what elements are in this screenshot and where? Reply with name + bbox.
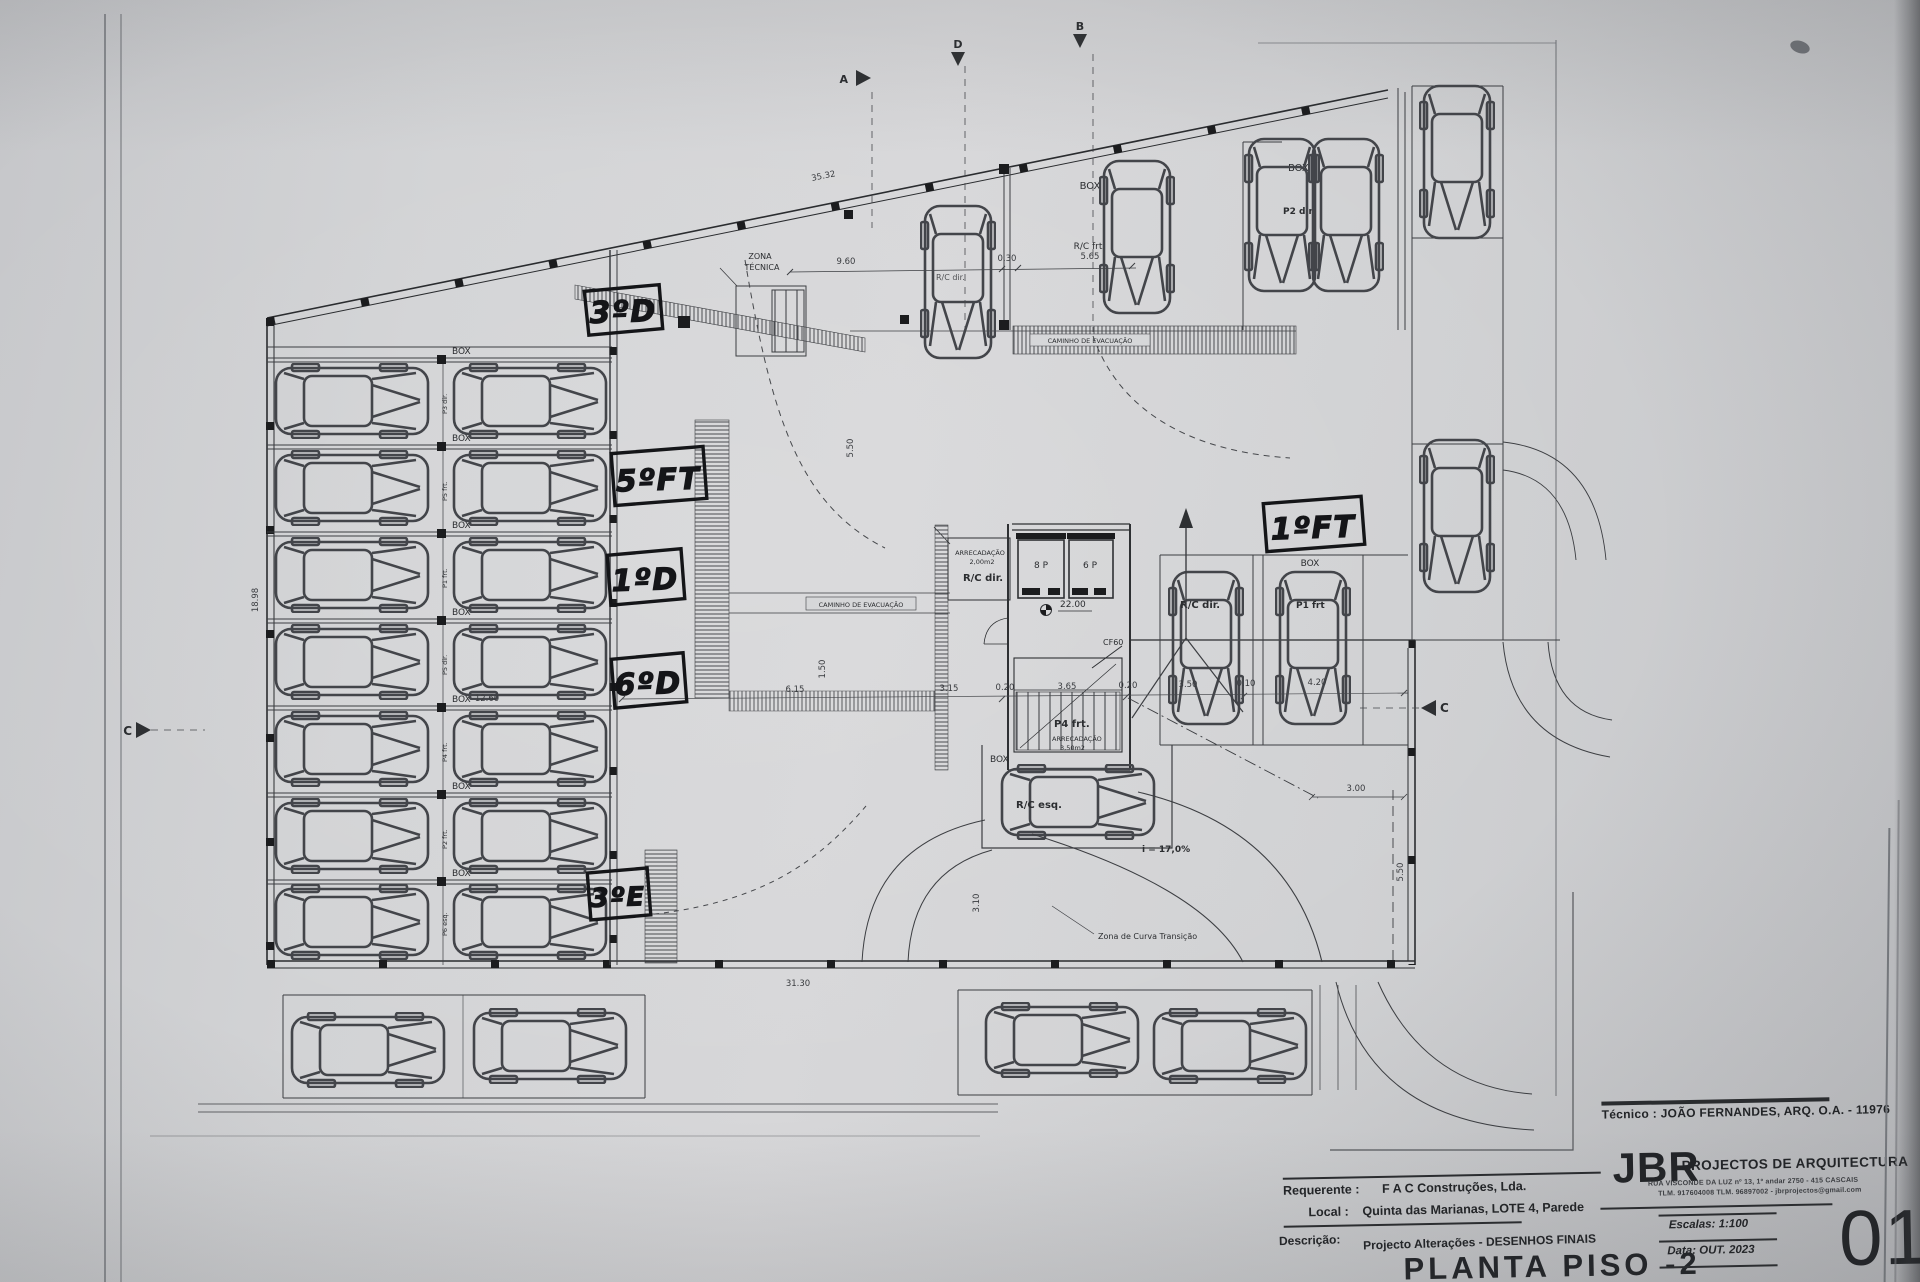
section-marker-icon: [1073, 34, 1087, 48]
svg-text:5ºFT: 5ºFT: [615, 461, 702, 499]
data-value: OUT. 2023: [1699, 1244, 1755, 1257]
car-icon: [1100, 161, 1174, 313]
p2-dir-label: P2 dir.: [1283, 207, 1315, 217]
car-icon: [292, 1013, 444, 1087]
car-icon: [1245, 139, 1319, 291]
lift-6p-label: 6 P: [1083, 561, 1098, 571]
dim-3-00: 3.00: [1347, 784, 1366, 794]
dim-0-20: 0.20: [996, 683, 1015, 693]
local-value: Quinta das Marianas, LOTE 4, Parede: [1362, 1200, 1584, 1218]
stall-code: P6 esq.: [441, 912, 449, 936]
box-label: BOX: [452, 782, 471, 792]
box-label: BOX: [452, 608, 471, 618]
dim-4-20: 4.20: [1308, 678, 1327, 688]
firm-name: PROJECTOS DE ARQUITECTURA: [1681, 1154, 1908, 1173]
car-icon: [1169, 572, 1243, 724]
rc-dir-label: R/C dir.: [963, 573, 1003, 584]
car-icon: [276, 451, 428, 525]
stall-code: P1 frt.: [441, 568, 449, 588]
section-a: A: [839, 73, 848, 86]
data-label: Data:: [1667, 1245, 1696, 1258]
dim-5-50: 5.50: [846, 439, 856, 458]
car-icon: [986, 1003, 1138, 1077]
divider: [1659, 1212, 1777, 1216]
title-block: Técnico : JOÃO FERNANDES, ARQ. O.A. - 11…: [1248, 1080, 1920, 1282]
section-marker-icon: [136, 722, 151, 738]
section-marker-icon: [951, 52, 965, 66]
tecnico-line: Técnico : JOÃO FERNANDES, ARQ. O.A. - 11…: [1601, 1102, 1890, 1122]
box-label: BOX: [452, 347, 471, 357]
car-icon: [454, 364, 606, 438]
rc-frt-label: R/C frt: [1074, 242, 1103, 252]
divider: [1283, 1172, 1601, 1180]
stall-code: P4 frt.: [441, 742, 449, 762]
car-icon: [1154, 1009, 1306, 1083]
dim-0-20: 0.20: [1119, 681, 1138, 691]
zona-tecnica-label: ZONA: [748, 252, 772, 261]
dim-3-10: 3.10: [972, 894, 982, 913]
dim-18-98: 18.98: [251, 588, 261, 612]
photo-edge-shadow: [1894, 0, 1920, 1282]
dim-0-30: 0.30: [998, 254, 1017, 264]
rc-esq-label: R/C esq.: [1016, 800, 1062, 811]
curve-zone-label: Zona de Curva Transição: [1098, 932, 1197, 941]
dim-5-65: 5.65: [1081, 252, 1100, 262]
annotation-5ft: 5ºFT: [611, 446, 707, 505]
section-c-right: C: [1440, 701, 1449, 715]
car-icon: [276, 625, 428, 699]
annotation-3e: 3ºE: [587, 868, 651, 920]
paper-clip-mark: [1789, 38, 1812, 56]
p1-frt-label: P1 frt: [1296, 601, 1325, 611]
dim-5-50: 5.50: [1396, 863, 1406, 882]
corridors: CAMINHO DE EVACUAÇÃO: [634, 260, 1290, 963]
dim-3-65: 3.65: [1058, 682, 1077, 692]
cf60-label: CF60: [1103, 638, 1123, 647]
escalas-label: Escalas:: [1669, 1218, 1716, 1231]
car-icon: [1276, 572, 1350, 724]
car-icon: [921, 206, 995, 358]
left-parking-grid: BOX P3 dir. BOX P5 frt. BOX P1 frt. BOX …: [267, 250, 690, 965]
car-icon: [454, 712, 606, 786]
box-label: BOX: [452, 434, 471, 444]
section-marker-icon: [856, 70, 871, 86]
section-c-left: C: [123, 724, 132, 738]
section-marker-icon: [1421, 700, 1436, 716]
divider: [1600, 1203, 1832, 1209]
caminho-evacuacao-label: CAMINHO DE EVACUAÇÃO: [1048, 336, 1133, 345]
car-icon: [454, 538, 606, 612]
rc-esq-stall: BOX R/C esq.: [982, 745, 1172, 848]
car-icon: [276, 885, 428, 959]
car-icon: [454, 625, 606, 699]
annotation-6d: 6ºD: [611, 653, 687, 709]
arrecadacao-area: 3,50m2: [1060, 744, 1085, 752]
car-icon: [276, 538, 428, 612]
stall-code: P5 frt.: [441, 481, 449, 501]
dim-12-60: 12.60: [475, 694, 499, 704]
svg-text:3ºE: 3ºE: [590, 882, 646, 914]
dim-3-50: 3.50: [1179, 680, 1198, 690]
svg-text:3ºD: 3ºD: [589, 294, 657, 331]
car-icon: [454, 799, 606, 873]
level-value: 22.00: [1060, 600, 1086, 610]
top-zone: ZONA TÉCNICA R/C dir. BOX R/C frt CAMINH…: [720, 86, 1606, 640]
stall-code: P3 dir.: [441, 394, 449, 414]
annotation-1d: 1ºD: [607, 549, 685, 606]
lift-8p-label: 8 P: [1034, 561, 1049, 571]
escalas-value: 1:100: [1719, 1218, 1749, 1231]
section-d: D: [953, 38, 962, 51]
svg-text:6ºD: 6ºD: [614, 666, 682, 703]
annotation-1ft: 1ºFT: [1263, 496, 1365, 551]
car-icon: [454, 451, 606, 525]
arrecadacao-area: 2,00m2: [970, 558, 995, 566]
box-label: BOX: [990, 755, 1009, 765]
zona-tecnica-label: TÉCNICA: [744, 261, 780, 272]
caminho-evacuacao-label: CAMINHO DE EVACUAÇÃO: [819, 600, 904, 609]
stall-code: P2 frt.: [441, 829, 449, 849]
stall-code: P5 dir.: [441, 655, 449, 675]
svg-text:1ºD: 1ºD: [611, 562, 679, 599]
arrecadacao-label: ARRECADAÇÃO: [955, 548, 1005, 557]
dim-35-32: 35.32: [811, 169, 837, 184]
p4-frt-label: P4 frt.: [1054, 719, 1090, 730]
central-core: 8 P 6 P ARRECADAÇÃO 2,00m2 R/C dir. 22.0…: [934, 524, 1130, 770]
car-icon: [1420, 86, 1494, 238]
dim-1-50: 1.50: [818, 660, 828, 679]
arrecadacao-label: ARRECADAÇÃO: [1052, 734, 1102, 743]
ramp-slope-label: i = 17,0%: [1142, 845, 1190, 855]
dim-9-60: 9.60: [837, 257, 856, 267]
box-label: BOX: [1301, 559, 1320, 569]
descricao-label: Descrição:: [1279, 1232, 1341, 1248]
dim-0-10: 0.10: [1237, 679, 1256, 689]
local-label: Local :: [1308, 1205, 1349, 1220]
car-icon: [276, 364, 428, 438]
requerente-label: Requerente :: [1283, 1182, 1360, 1197]
box-label: BOX: [452, 869, 471, 879]
car-icon: [454, 885, 606, 959]
box-label: BOX: [452, 695, 471, 705]
section-b: B: [1076, 20, 1084, 33]
box-label: BOX: [452, 521, 471, 531]
car-icon: [276, 799, 428, 873]
car-icon: [276, 712, 428, 786]
box-label: BOX: [1080, 181, 1101, 192]
dim-31-30: 31.30: [786, 979, 810, 989]
car-icon: [1309, 139, 1383, 291]
svg-text:1ºFT: 1ºFT: [1270, 509, 1357, 547]
dim-3-15: 3.15: [940, 684, 959, 694]
dim-6-15: 6.15: [786, 685, 805, 695]
divider: [1659, 1238, 1777, 1242]
rc-dir-label: R/C dir.: [936, 273, 965, 282]
drawing-title: PLANTA PISO -2: [1403, 1246, 1701, 1282]
scanned-floor-plan-photo: BOX P3 dir. BOX P5 frt. BOX P1 frt. BOX …: [0, 0, 1920, 1282]
divider: [1284, 1221, 1522, 1227]
dimensions: 35.32 9.60 0.30 5.65 5.50 18.98 12.60 6.…: [251, 169, 1408, 989]
car-icon: [1420, 440, 1494, 592]
requerente-value: F A C Construções, Lda.: [1382, 1179, 1526, 1196]
right-middle-stalls: BOX R/C dir. P1 frt: [1160, 555, 1408, 745]
car-icon: [474, 1009, 626, 1083]
direction-arrow-icon: [1179, 508, 1193, 528]
